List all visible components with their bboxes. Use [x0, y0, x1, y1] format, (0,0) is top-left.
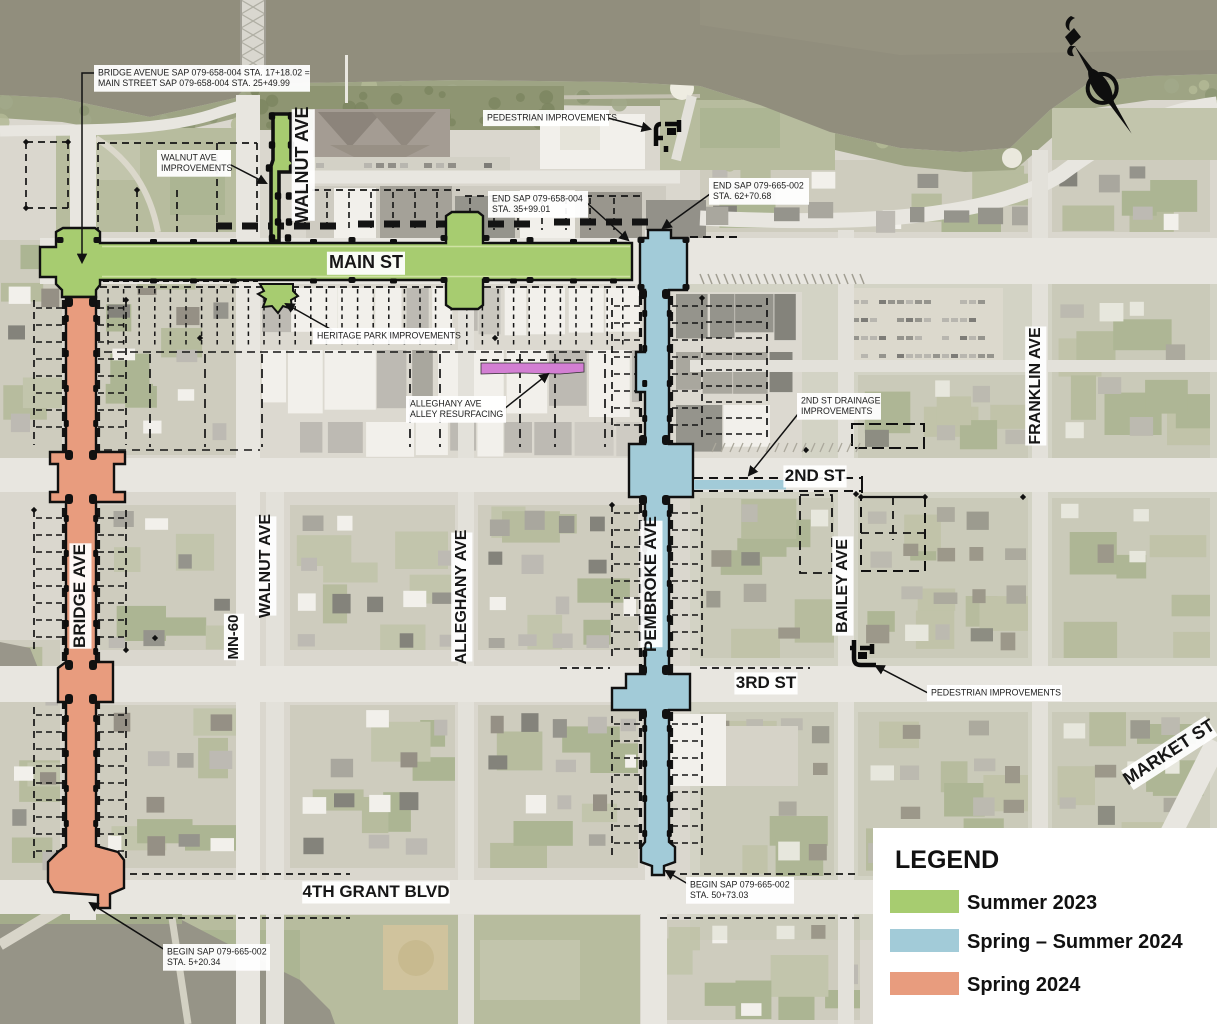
svg-text:2ND ST DRAINAGE: 2ND ST DRAINAGE [801, 395, 881, 405]
svg-text:STA. 35+99.01: STA. 35+99.01 [492, 204, 550, 214]
svg-text:IMPROVEMENTS: IMPROVEMENTS [161, 163, 232, 173]
svg-text:4TH GRANT BLVD: 4TH GRANT BLVD [302, 882, 449, 901]
svg-text:STA. 5+20.34: STA. 5+20.34 [167, 957, 220, 967]
svg-text:BEGIN SAP 079-665-002: BEGIN SAP 079-665-002 [167, 946, 267, 956]
svg-text:Spring 2024: Spring 2024 [967, 974, 1081, 996]
svg-text:2ND ST: 2ND ST [785, 466, 846, 485]
svg-text:BRIDGE AVE: BRIDGE AVE [70, 544, 89, 648]
svg-text:WALNUT AVE: WALNUT AVE [292, 107, 312, 224]
svg-text:BRIDGE AVENUE SAP 079-658-004: BRIDGE AVENUE SAP 079-658-004 STA. 17+18… [98, 67, 310, 77]
svg-text:ALLEY RESURFACING: ALLEY RESURFACING [410, 409, 503, 419]
svg-text:Summer 2023: Summer 2023 [967, 892, 1097, 914]
svg-text:ALLEGHANY AVE: ALLEGHANY AVE [410, 398, 482, 408]
svg-text:WALNUT AVE: WALNUT AVE [161, 152, 217, 162]
svg-text:FRANKLIN AVE: FRANKLIN AVE [1027, 327, 1044, 445]
svg-text:BAILEY AVE: BAILEY AVE [834, 539, 851, 633]
svg-text:END SAP 079-658-004: END SAP 079-658-004 [492, 193, 583, 203]
svg-text:PEMBROKE AVE: PEMBROKE AVE [641, 516, 660, 652]
svg-text:END SAP 079-665-002: END SAP 079-665-002 [713, 180, 804, 190]
svg-text:WALNUT AVE: WALNUT AVE [257, 514, 274, 618]
svg-text:LEGEND: LEGEND [895, 846, 999, 874]
svg-text:STA. 62+70.68: STA. 62+70.68 [713, 191, 771, 201]
svg-text:STA. 50+73.03: STA. 50+73.03 [690, 890, 748, 900]
svg-text:IMPROVEMENTS: IMPROVEMENTS [801, 406, 872, 416]
svg-text:HERITAGE PARK IMPROVEMENTS: HERITAGE PARK IMPROVEMENTS [317, 330, 461, 340]
svg-text:PEDESTRIAN IMPROVEMENTS: PEDESTRIAN IMPROVEMENTS [931, 687, 1061, 697]
svg-text:BEGIN SAP 079-665-002: BEGIN SAP 079-665-002 [690, 879, 790, 889]
svg-text:MN-60: MN-60 [225, 614, 242, 659]
svg-text:ALLEGHANY AVE: ALLEGHANY AVE [453, 529, 470, 664]
svg-text:MAIN ST: MAIN ST [329, 252, 403, 272]
svg-text:MAIN STREET SAP 079-658-004 ST: MAIN STREET SAP 079-658-004 STA. 25+49.9… [98, 78, 290, 88]
svg-text:3RD ST: 3RD ST [736, 673, 797, 692]
svg-text:PEDESTRIAN IMPROVEMENTS: PEDESTRIAN IMPROVEMENTS [487, 112, 617, 122]
svg-text:Spring – Summer 2024: Spring – Summer 2024 [967, 931, 1184, 953]
